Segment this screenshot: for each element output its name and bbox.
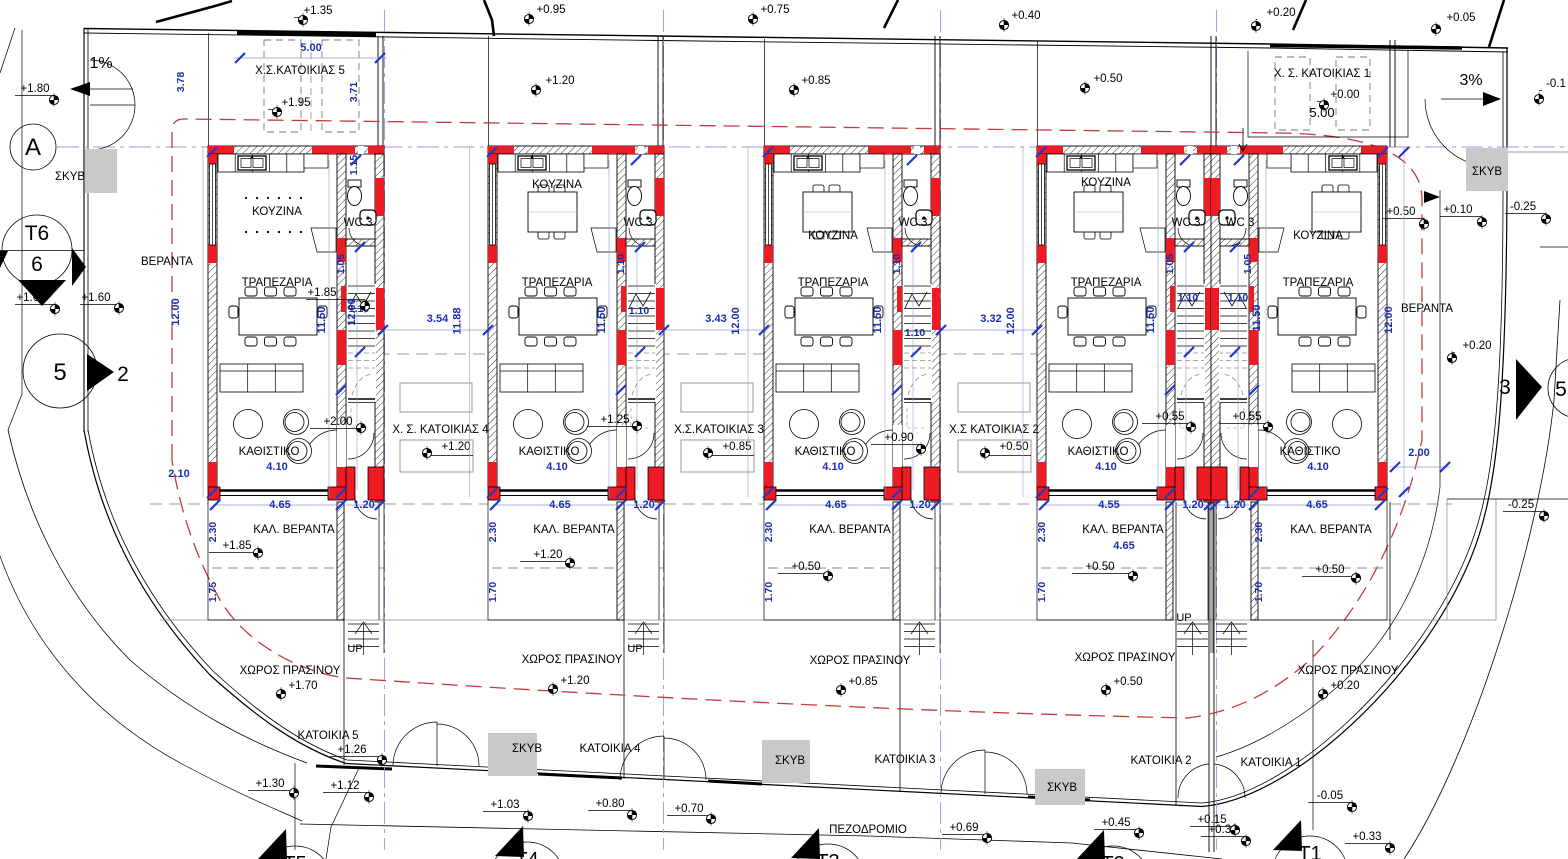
svg-text:-0.25: -0.25 <box>1508 499 1534 511</box>
svg-text:Χ.Σ.ΚΑΤΟΙΚΙΑΣ 3: Χ.Σ.ΚΑΤΟΙΚΙΑΣ 3 <box>674 424 764 436</box>
svg-text:+1.80: +1.80 <box>20 83 49 95</box>
svg-text:1.20: 1.20 <box>909 499 930 511</box>
svg-text:+0.70: +0.70 <box>674 803 703 815</box>
svg-text:-0.05: -0.05 <box>1317 790 1343 802</box>
svg-text:1.70: 1.70 <box>763 582 775 603</box>
svg-text:+1.70: +1.70 <box>288 680 317 692</box>
svg-text:4.10: 4.10 <box>546 461 567 473</box>
svg-text:3.71: 3.71 <box>348 82 360 103</box>
svg-text:ΣΚΥΒ: ΣΚΥΒ <box>775 755 805 767</box>
svg-text:Χ.Σ.ΚΑΤΟΙΚΙΑΣ 5: Χ.Σ.ΚΑΤΟΙΚΙΑΣ 5 <box>255 65 345 77</box>
svg-text:+0.69: +0.69 <box>949 822 978 834</box>
svg-text:WC 3: WC 3 <box>899 217 928 229</box>
svg-text:ΚΑΘΙΣΤΙΚΟ: ΚΑΘΙΣΤΙΚΟ <box>239 446 300 458</box>
svg-text:3.78: 3.78 <box>175 72 187 93</box>
svg-text:1.75: 1.75 <box>207 582 219 603</box>
svg-text:12.00: 12.00 <box>1005 307 1017 335</box>
svg-text:ΧΩΡΟΣ ΠΡΑΣΙΝΟΥ: ΧΩΡΟΣ ΠΡΑΣΙΝΟΥ <box>1298 665 1399 677</box>
svg-text:+1.12: +1.12 <box>330 780 359 792</box>
svg-text:+0.55: +0.55 <box>1155 411 1184 423</box>
svg-text:+1.03: +1.03 <box>490 799 519 811</box>
svg-text:ΚΑΛ. ΒΕΡΑΝΤΑ: ΚΑΛ. ΒΕΡΑΝΤΑ <box>1290 524 1372 536</box>
svg-text:-0.1: -0.1 <box>1546 78 1566 90</box>
svg-text:11.50: 11.50 <box>316 307 328 334</box>
svg-text:2.00: 2.00 <box>1408 447 1429 459</box>
svg-text:+0.85: +0.85 <box>801 75 830 87</box>
svg-text:12.00: 12.00 <box>346 298 358 326</box>
svg-text:ΚΑΘΙΣΤΙΚΟ: ΚΑΘΙΣΤΙΚΟ <box>519 446 580 458</box>
svg-text:ΧΩΡΟΣ ΠΡΑΣΙΝΟΥ: ΧΩΡΟΣ ΠΡΑΣΙΝΟΥ <box>522 654 623 666</box>
svg-text:+1.35: +1.35 <box>303 5 332 17</box>
svg-text:5: 5 <box>1555 378 1567 401</box>
svg-text:+0.45: +0.45 <box>1101 817 1130 829</box>
svg-text:ΚΑΘΙΣΤΙΚΟ: ΚΑΘΙΣΤΙΚΟ <box>1068 446 1129 458</box>
svg-text:+0.15: +0.15 <box>1197 814 1226 826</box>
svg-text:ΚΑΛ. ΒΕΡΑΝΤΑ: ΚΑΛ. ΒΕΡΑΝΤΑ <box>253 524 335 536</box>
svg-text:T6: T6 <box>25 222 50 245</box>
svg-text:+1.95: +1.95 <box>281 97 310 109</box>
svg-text:+1.85: +1.85 <box>222 540 251 552</box>
svg-text:2.30: 2.30 <box>763 522 775 543</box>
svg-text:ΚΑΛ. ΒΕΡΑΝΤΑ: ΚΑΛ. ΒΕΡΑΝΤΑ <box>533 524 615 536</box>
svg-text:ΚΑΛ. ΒΕΡΑΝΤΑ: ΚΑΛ. ΒΕΡΑΝΤΑ <box>1082 524 1164 536</box>
svg-text:+1.25: +1.25 <box>600 414 629 426</box>
svg-text:+0.40: +0.40 <box>1011 10 1040 22</box>
svg-text:+0.95: +0.95 <box>536 4 565 16</box>
svg-text:12.00: 12.00 <box>170 298 182 326</box>
svg-text:2.30: 2.30 <box>1253 522 1265 543</box>
svg-text:4.10: 4.10 <box>822 461 843 473</box>
svg-text:2.30: 2.30 <box>207 522 219 543</box>
svg-text:ΣΚΥΒ: ΣΚΥΒ <box>1047 782 1077 794</box>
svg-text:Χ.Σ ΚΑΤΟΙΚΙΑΣ 2: Χ.Σ ΚΑΤΟΙΚΙΑΣ 2 <box>949 424 1039 436</box>
svg-text:+0.05: +0.05 <box>1446 12 1475 24</box>
svg-text:+0.55: +0.55 <box>1232 411 1261 423</box>
svg-text:ΣΚΥΒ: ΣΚΥΒ <box>1472 166 1502 178</box>
svg-text:WC 3: WC 3 <box>344 217 373 229</box>
svg-text:11.50: 11.50 <box>872 307 884 334</box>
svg-text:ΣΚΥΒ: ΣΚΥΒ <box>55 171 85 183</box>
svg-text:UP: UP <box>1176 612 1191 624</box>
svg-text:11.50: 11.50 <box>1145 307 1157 334</box>
svg-text:+0.50: +0.50 <box>999 441 1028 453</box>
svg-text:+1.20: +1.20 <box>560 675 589 687</box>
svg-text:1.10: 1.10 <box>629 305 650 317</box>
svg-text:ΧΩΡΟΣ ΠΡΑΣΙΝΟΥ: ΧΩΡΟΣ ΠΡΑΣΙΝΟΥ <box>1075 652 1176 664</box>
svg-text:+1.26: +1.26 <box>337 744 366 756</box>
svg-text:ΤΡΑΠΕΖΑΡΙΑ: ΤΡΑΠΕΖΑΡΙΑ <box>798 277 869 289</box>
svg-text:1.70: 1.70 <box>1036 582 1048 603</box>
svg-text:4.65: 4.65 <box>1306 499 1327 511</box>
svg-text:1.15: 1.15 <box>348 155 360 176</box>
svg-text:WC 3: WC 3 <box>624 217 653 229</box>
svg-text:4.10: 4.10 <box>1095 461 1116 473</box>
svg-text:+0.80: +0.80 <box>595 798 624 810</box>
svg-text:UP: UP <box>627 643 642 655</box>
svg-text:ΠΕΖΟΔΡΟΜΙΟ: ΠΕΖΟΔΡΟΜΙΟ <box>829 824 907 836</box>
svg-text:+0.20: +0.20 <box>1330 680 1359 692</box>
svg-text:2.30: 2.30 <box>1036 522 1048 543</box>
svg-text:+1.20: +1.20 <box>441 441 470 453</box>
svg-text:ΚΟΥΖΙΝΑ: ΚΟΥΖΙΝΑ <box>532 179 582 191</box>
svg-text:2: 2 <box>117 363 129 386</box>
svg-text:6: 6 <box>31 253 43 276</box>
svg-text:+0.85: +0.85 <box>848 676 877 688</box>
svg-text:4.65: 4.65 <box>269 499 290 511</box>
svg-text:ΚΑΛ. ΒΕΡΑΝΤΑ: ΚΑΛ. ΒΕΡΑΝΤΑ <box>809 524 891 536</box>
svg-text:+0.20: +0.20 <box>1266 7 1295 19</box>
svg-text:1.05: 1.05 <box>335 254 347 275</box>
svg-text:1.10: 1.10 <box>891 254 903 275</box>
svg-text:ΤΡΑΠΕΖΑΡΙΑ: ΤΡΑΠΕΖΑΡΙΑ <box>522 277 593 289</box>
svg-text:ΚΑΤΟΙΚΙΑ 4: ΚΑΤΟΙΚΙΑ 4 <box>580 743 642 755</box>
svg-text:4.65: 4.65 <box>825 499 846 511</box>
svg-text:ΒΕΡΑΝΤΑ: ΒΕΡΑΝΤΑ <box>141 256 193 268</box>
svg-text:ΚΟΥΖΙΝΑ: ΚΟΥΖΙΝΑ <box>252 206 302 218</box>
svg-text:+0.50: +0.50 <box>1093 73 1122 85</box>
svg-text:+0.10: +0.10 <box>1443 204 1472 216</box>
svg-text:ΚΟΥΖΙΝΑ: ΚΟΥΖΙΝΑ <box>808 230 858 242</box>
svg-text:ΤΡΑΠΕΖΑΡΙΑ: ΤΡΑΠΕΖΑΡΙΑ <box>242 277 313 289</box>
svg-text:+0.50: +0.50 <box>1113 676 1142 688</box>
svg-text:3.54: 3.54 <box>427 313 449 325</box>
svg-text:+0.00: +0.00 <box>1330 89 1359 101</box>
svg-text:+0.33: +0.33 <box>1352 831 1381 843</box>
svg-text:A: A <box>25 134 41 161</box>
svg-text:+0.85: +0.85 <box>722 441 751 453</box>
svg-text:+0.50: +0.50 <box>1315 564 1344 576</box>
svg-text:ΤΡΑΠΕΖΑΡΙΑ: ΤΡΑΠΕΖΑΡΙΑ <box>1071 277 1142 289</box>
svg-text:1.20: 1.20 <box>1224 499 1245 511</box>
svg-text:1.70: 1.70 <box>1253 582 1265 603</box>
svg-text:1.10: 1.10 <box>905 327 926 339</box>
svg-text:1.20: 1.20 <box>353 499 374 511</box>
svg-text:5.00: 5.00 <box>300 42 321 54</box>
svg-text:+0.50: +0.50 <box>791 561 820 573</box>
svg-text:ΚΑΤΟΙΚΙΑ 2: ΚΑΤΟΙΚΙΑ 2 <box>1131 755 1192 767</box>
svg-text:12.00: 12.00 <box>730 307 742 335</box>
svg-text:+1.63: +1.63 <box>16 292 45 304</box>
svg-text:ΤΡΑΠΕΖΑΡΙΑ: ΤΡΑΠΕΖΑΡΙΑ <box>1283 277 1354 289</box>
svg-text:4.55: 4.55 <box>1098 499 1119 511</box>
svg-text:1.10: 1.10 <box>1228 292 1249 304</box>
svg-text:ΚΑΘΙΣΤΙΚΟ: ΚΑΘΙΣΤΙΚΟ <box>1280 446 1341 458</box>
svg-text:5.00: 5.00 <box>1309 105 1334 120</box>
svg-text:+1.85: +1.85 <box>307 287 336 299</box>
svg-text:+1.60: +1.60 <box>81 292 110 304</box>
svg-text:T1: T1 <box>1298 843 1321 859</box>
svg-text:ΧΩΡΟΣ ΠΡΑΣΙΝΟΥ: ΧΩΡΟΣ ΠΡΑΣΙΝΟΥ <box>810 655 911 667</box>
svg-text:ΚΑΤΟΙΚΙΑ 3: ΚΑΤΟΙΚΙΑ 3 <box>875 754 936 766</box>
svg-text:2.10: 2.10 <box>168 468 189 480</box>
svg-text:Χ. Σ. ΚΑΤΟΙΚΙΑΣ 1: Χ. Σ. ΚΑΤΟΙΚΙΑΣ 1 <box>1274 68 1370 80</box>
svg-text:2.30: 2.30 <box>487 522 499 543</box>
svg-text:+1.30: +1.30 <box>255 778 284 790</box>
svg-text:+0.20: +0.20 <box>1462 340 1491 352</box>
svg-text:ΚΑΘΙΣΤΙΚΟ: ΚΑΘΙΣΤΙΚΟ <box>795 446 856 458</box>
svg-text:5: 5 <box>53 359 66 386</box>
svg-text:ΧΩΡΟΣ ΠΡΑΣΙΝΟΥ: ΧΩΡΟΣ ΠΡΑΣΙΝΟΥ <box>240 665 341 677</box>
svg-text:WC 3: WC 3 <box>1226 217 1255 229</box>
svg-text:+0.50: +0.50 <box>1386 206 1415 218</box>
svg-text:+0.50: +0.50 <box>1085 561 1114 573</box>
svg-text:1.70: 1.70 <box>487 582 499 603</box>
svg-text:4.65: 4.65 <box>549 499 570 511</box>
svg-text:4.65: 4.65 <box>1113 540 1134 552</box>
svg-text:Χ. Σ. ΚΑΤΟΙΚΙΑΣ 4: Χ. Σ. ΚΑΤΟΙΚΙΑΣ 4 <box>392 424 489 436</box>
svg-text:11.88: 11.88 <box>452 308 464 335</box>
svg-text:ΚΑΤΟΙΚΙΑ 1: ΚΑΤΟΙΚΙΑ 1 <box>1241 757 1302 769</box>
svg-text:1.10: 1.10 <box>1178 292 1199 304</box>
svg-text:+0.90: +0.90 <box>884 432 913 444</box>
svg-text:3: 3 <box>1499 376 1511 399</box>
svg-text:+2.00: +2.00 <box>323 416 352 428</box>
svg-text:+1.20: +1.20 <box>533 549 562 561</box>
svg-text:1.05: 1.05 <box>1242 254 1254 275</box>
svg-text:1.10: 1.10 <box>615 254 627 275</box>
svg-text:-0.25: -0.25 <box>1510 201 1536 213</box>
svg-text:+0.75: +0.75 <box>760 4 789 16</box>
svg-text:1%: 1% <box>89 55 112 72</box>
svg-text:11.50: 11.50 <box>596 307 608 334</box>
svg-text:12.00: 12.00 <box>1383 306 1395 334</box>
svg-text:ΣΚΥΒ: ΣΚΥΒ <box>512 743 542 755</box>
svg-text:4.10: 4.10 <box>266 461 287 473</box>
svg-text:ΚΑΤΟΙΚΙΑ 5: ΚΑΤΟΙΚΙΑ 5 <box>298 730 359 742</box>
svg-text:3%: 3% <box>1459 72 1482 89</box>
svg-text:1.05: 1.05 <box>1164 254 1176 275</box>
svg-text:UP: UP <box>347 643 362 655</box>
svg-text:3.43: 3.43 <box>705 313 726 325</box>
svg-text:3.32: 3.32 <box>980 313 1001 325</box>
svg-text:1.20: 1.20 <box>633 499 654 511</box>
svg-text:11.50: 11.50 <box>1251 305 1263 332</box>
svg-text:1.20: 1.20 <box>1182 499 1203 511</box>
svg-text:4.10: 4.10 <box>1307 461 1328 473</box>
svg-text:ΚΟΥΖΙΝΑ: ΚΟΥΖΙΝΑ <box>1081 177 1131 189</box>
svg-text:+1.20: +1.20 <box>545 75 574 87</box>
svg-text:ΚΟΥΖΙΝΑ: ΚΟΥΖΙΝΑ <box>1293 230 1343 242</box>
svg-text:ΒΕΡΑΝΤΑ: ΒΕΡΑΝΤΑ <box>1401 303 1453 315</box>
svg-text:WC 3: WC 3 <box>1172 217 1201 229</box>
